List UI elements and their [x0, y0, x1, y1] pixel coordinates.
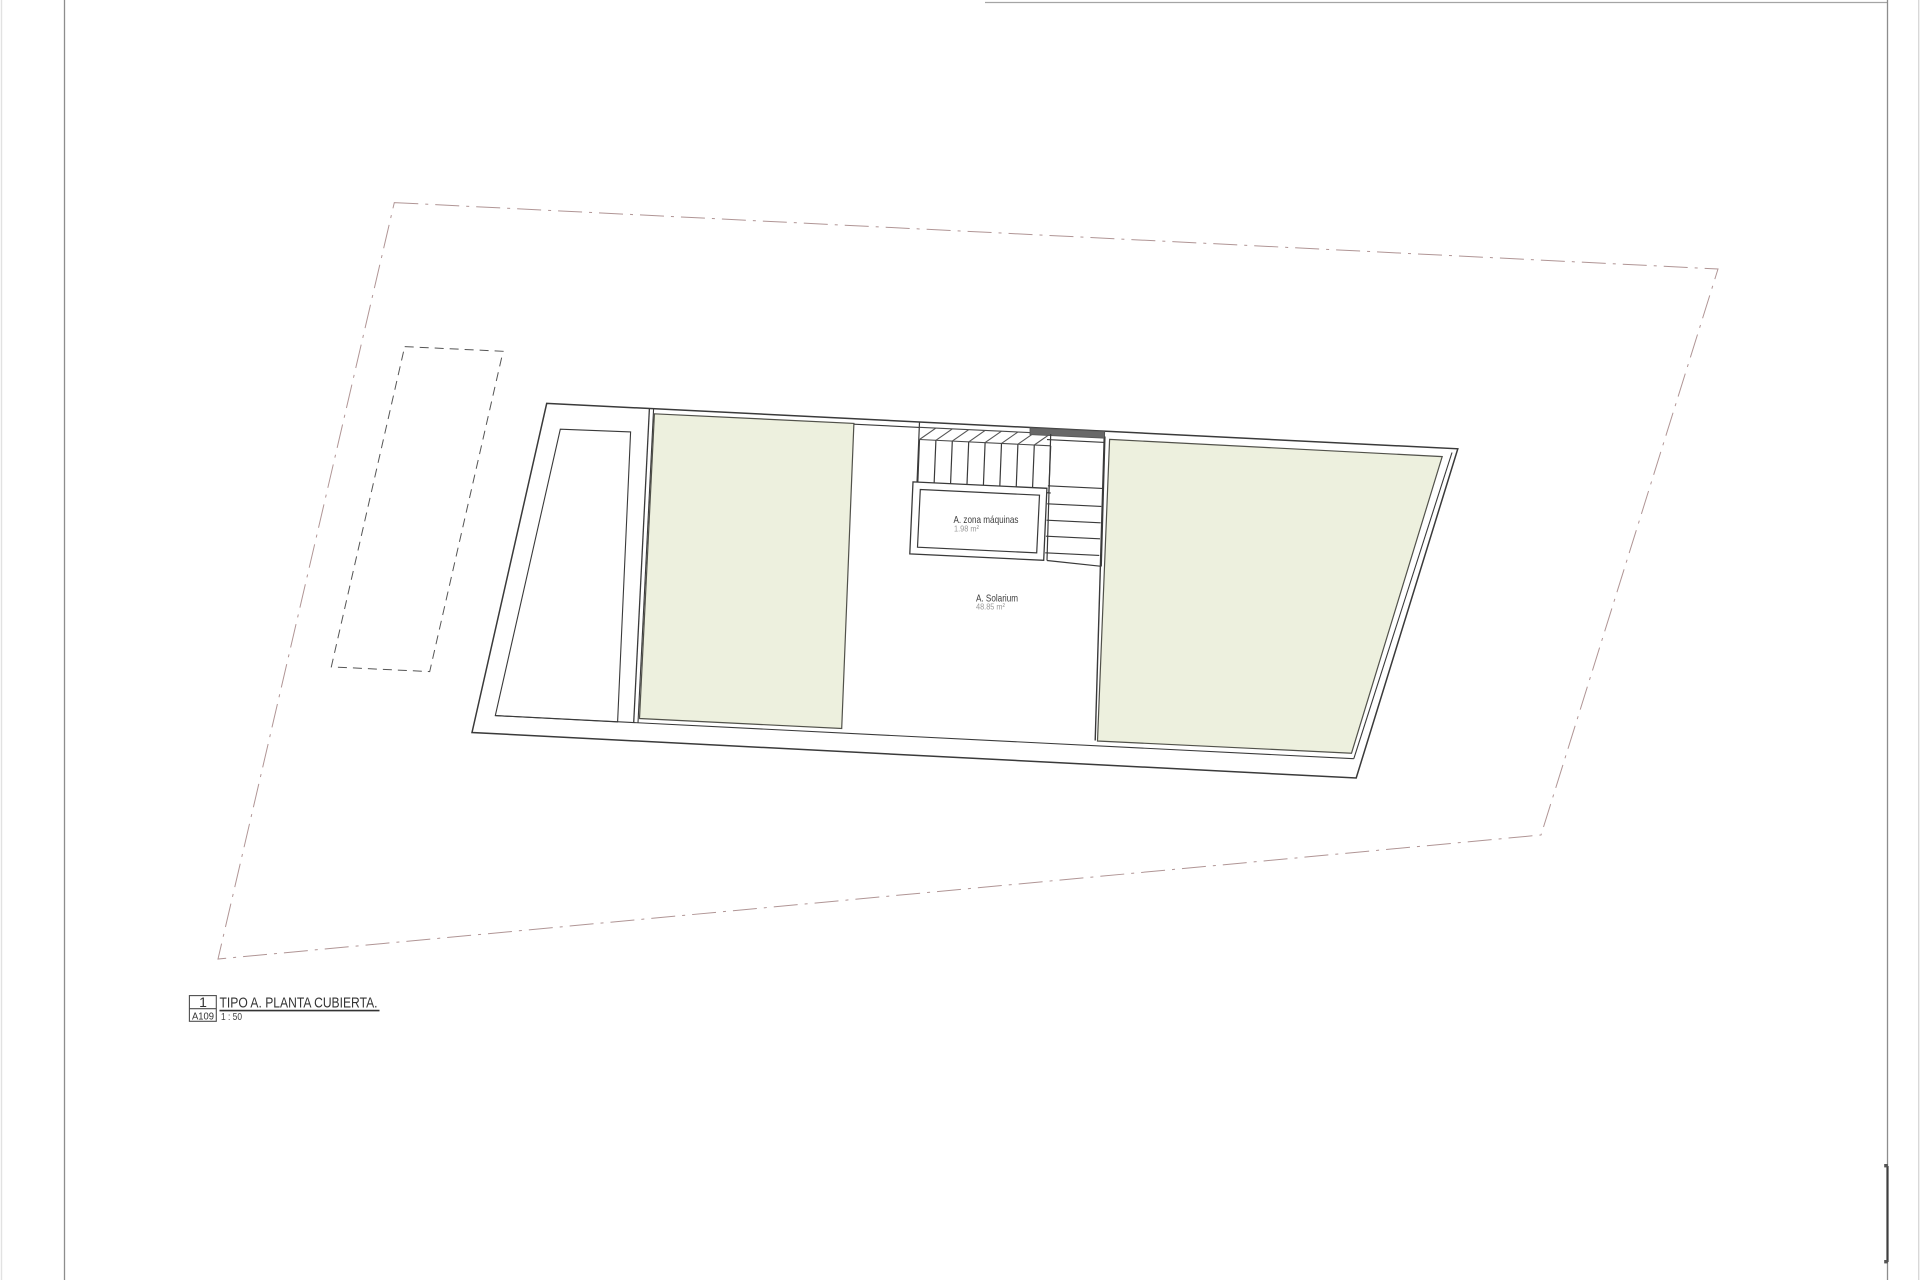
- svg-text:48.85 m²: 48.85 m²: [976, 602, 1005, 612]
- svg-text:1 : 50: 1 : 50: [221, 1012, 242, 1023]
- svg-text:1: 1: [199, 994, 207, 1010]
- svg-text:TIPO A. PLANTA CUBIERTA.: TIPO A. PLANTA CUBIERTA.: [220, 995, 378, 1012]
- svg-text:A109: A109: [192, 1011, 214, 1022]
- svg-text:1.98 m²: 1.98 m²: [954, 524, 979, 534]
